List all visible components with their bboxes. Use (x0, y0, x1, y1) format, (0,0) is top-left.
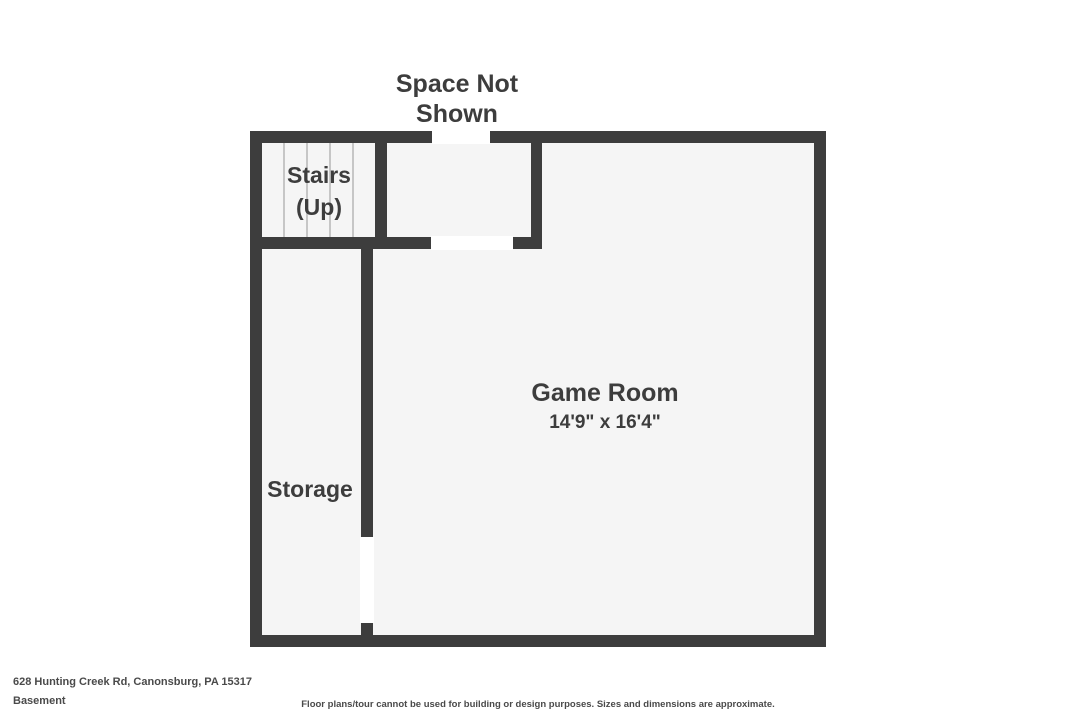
storage-room-label: Storage (267, 475, 353, 503)
space-not-shown-line2: Shown (396, 99, 518, 129)
stairs-room-label: Stairs (Up) (287, 159, 351, 223)
floor-plan-page: Space Not Shown Stairs (Up) Storage Game… (0, 0, 1076, 714)
game-room-dimensions: 14'9" x 16'4" (531, 409, 678, 437)
wall-stairs-landing-divider (375, 143, 387, 249)
property-address: 628 Hunting Creek Rd, Canonsburg, PA 153… (13, 676, 252, 688)
opening-landing-to-gameroom (431, 236, 513, 250)
opening-storage-to-gameroom (360, 537, 374, 623)
game-room-name: Game Room (531, 379, 678, 407)
stairs-label-line1: Stairs (287, 159, 351, 191)
stairs-label-line2: (Up) (287, 191, 351, 223)
space-not-shown-line1: Space Not (396, 69, 518, 99)
stair-tread (352, 143, 354, 237)
disclaimer-text: Floor plans/tour cannot be used for buil… (0, 699, 1076, 710)
game-room-label: Game Room 14'9" x 16'4" (531, 379, 678, 437)
opening-top-wall (432, 130, 490, 144)
storage-label-text: Storage (267, 475, 353, 503)
stair-tread (283, 143, 285, 237)
space-not-shown-label: Space Not Shown (396, 69, 518, 129)
wall-landing-gameroom-divider (531, 143, 542, 249)
